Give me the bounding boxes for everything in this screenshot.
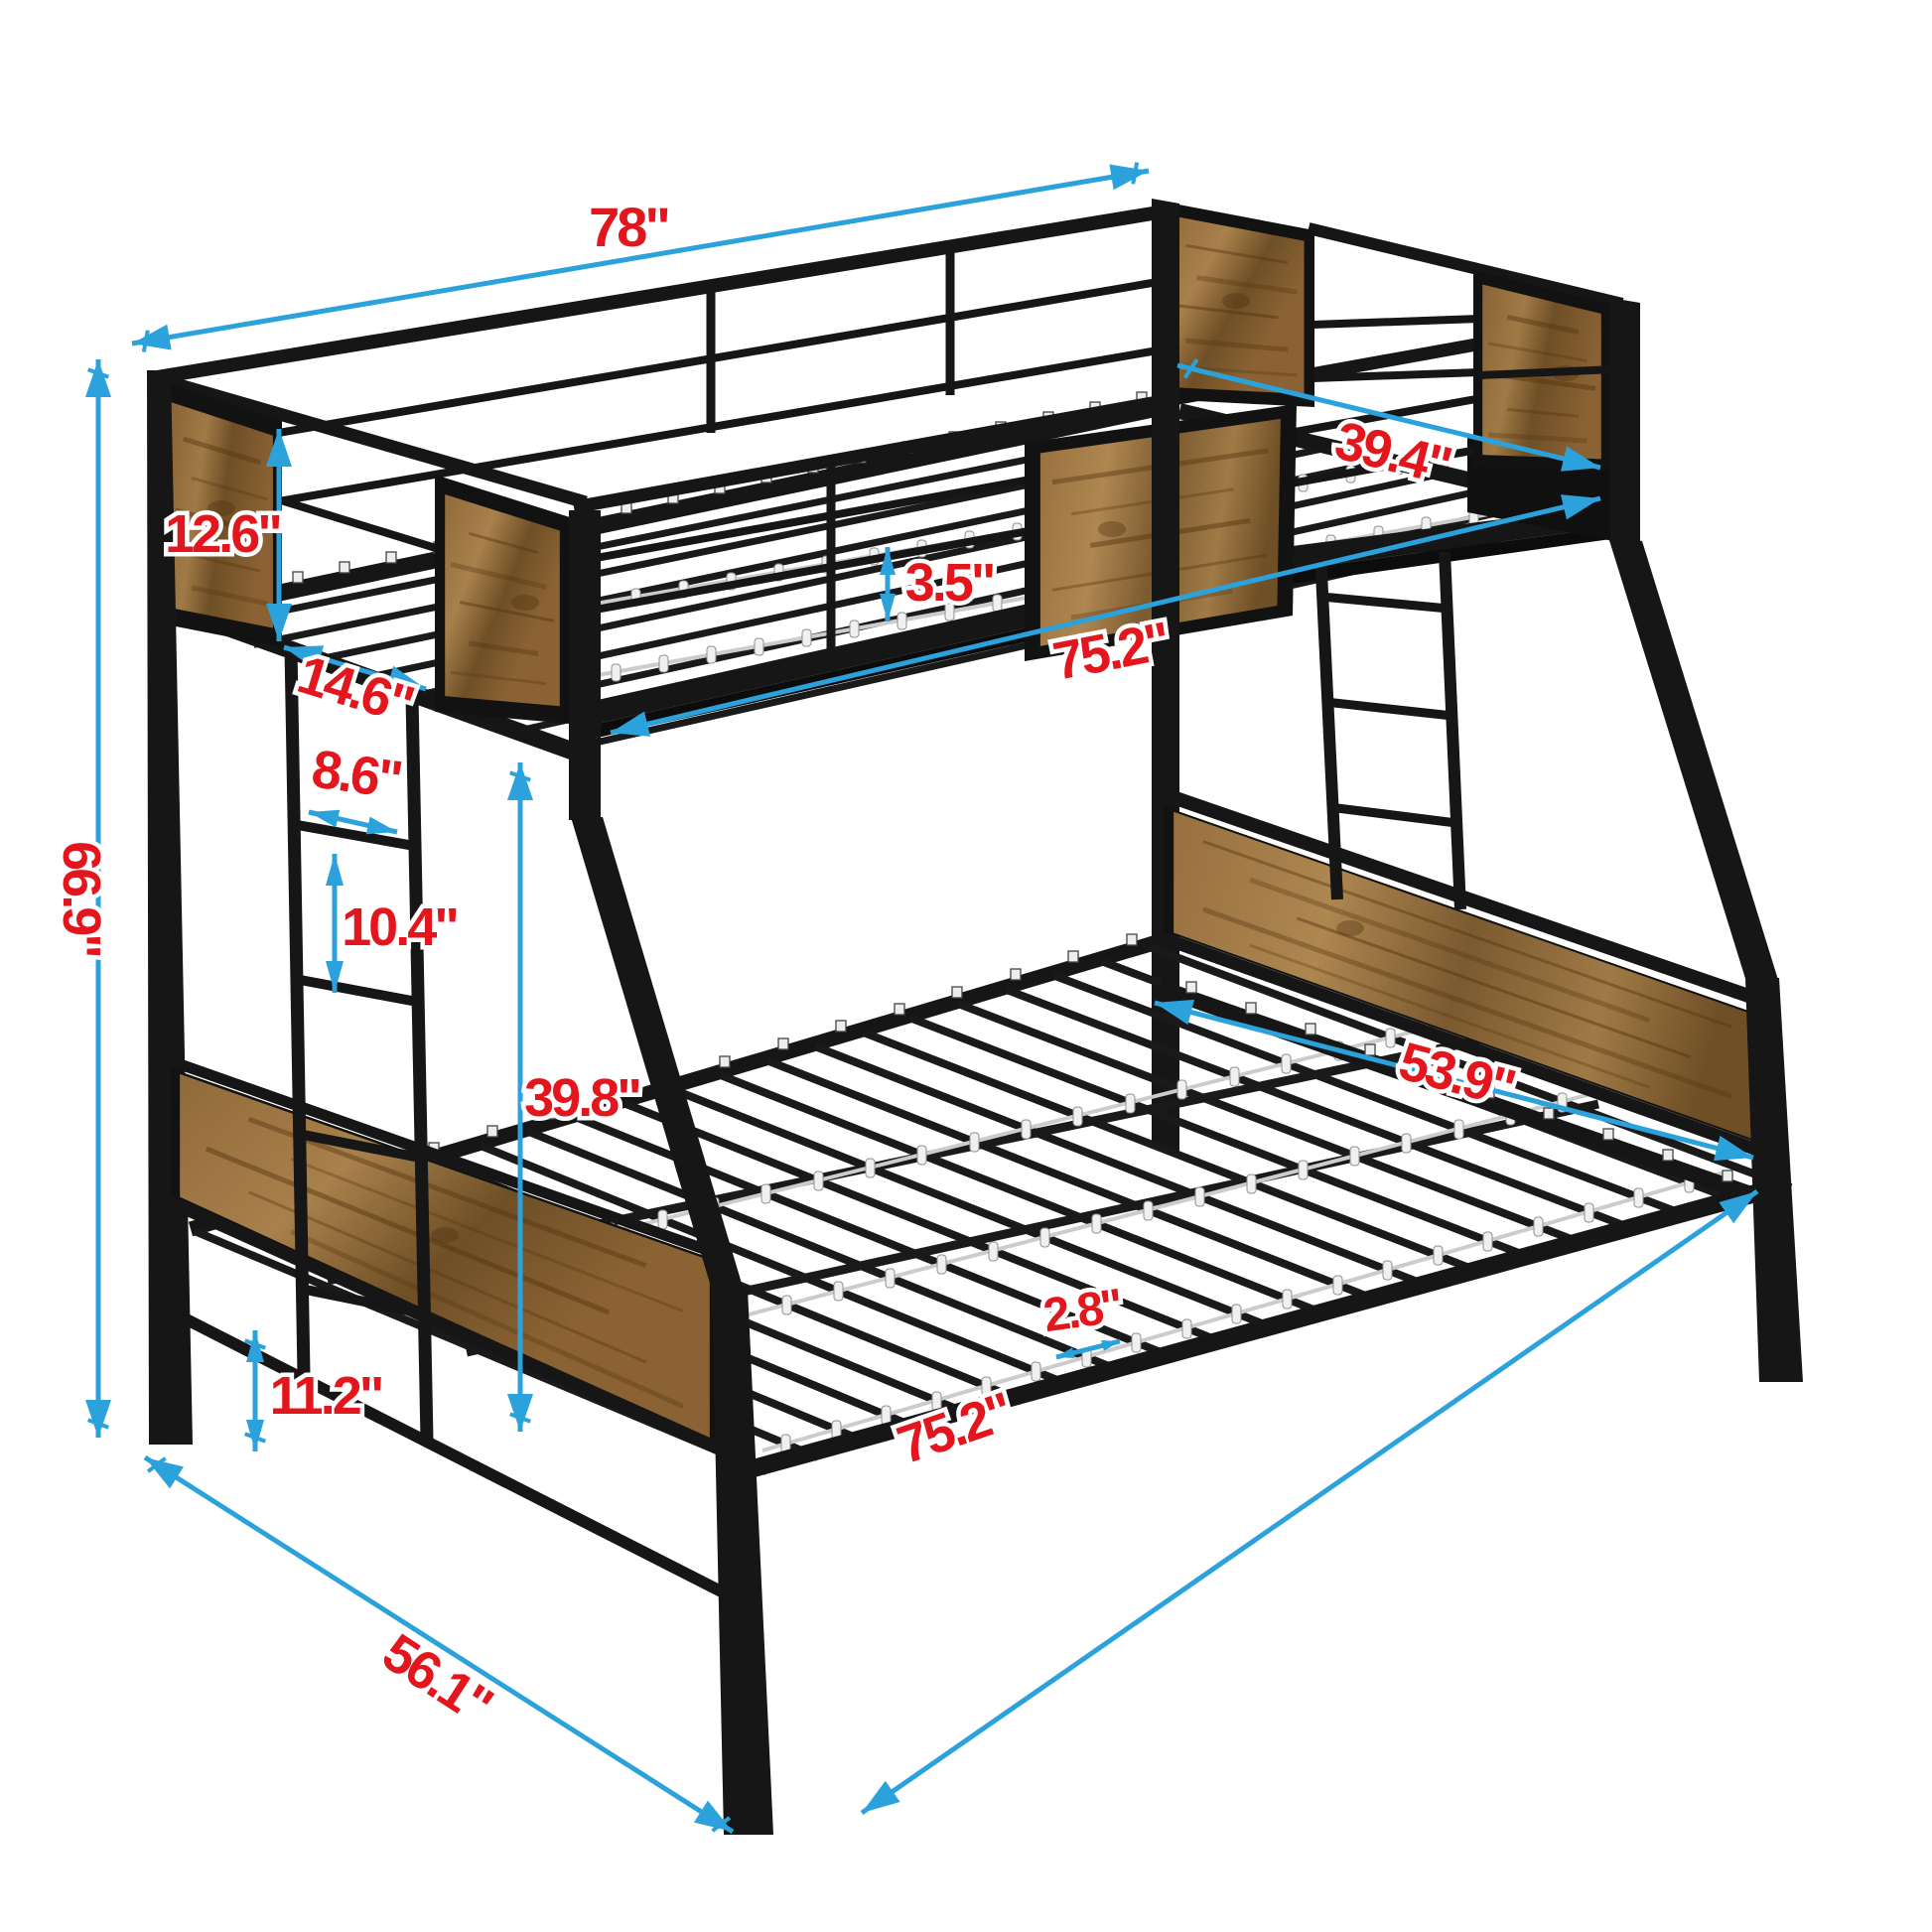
svg-text:12.6": 12.6" — [165, 504, 280, 564]
svg-text:3.5": 3.5" — [905, 553, 994, 613]
svg-text:10.4": 10.4" — [342, 897, 457, 957]
svg-text:78": 78" — [589, 196, 668, 258]
svg-text:2.8": 2.8" — [1040, 1280, 1124, 1342]
svg-text:8.6": 8.6" — [308, 739, 404, 810]
svg-text:66.9": 66.9" — [52, 841, 111, 956]
svg-text:39.8": 39.8" — [524, 1068, 639, 1128]
svg-text:11.2": 11.2" — [270, 1366, 382, 1426]
